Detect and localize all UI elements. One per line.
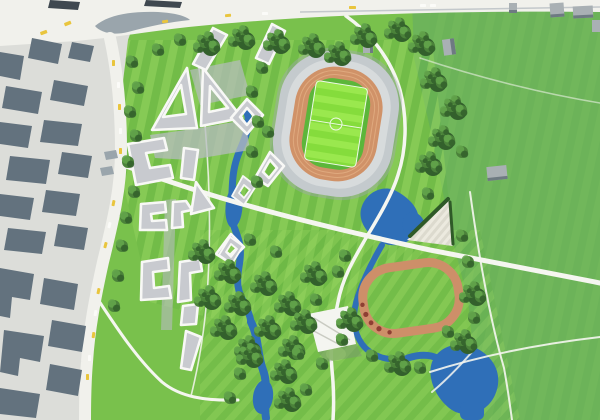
building-bar-3 <box>181 148 198 180</box>
building-bar-4 <box>181 304 198 325</box>
masterplan-image <box>0 0 600 420</box>
masterplan-rendering <box>0 0 600 420</box>
